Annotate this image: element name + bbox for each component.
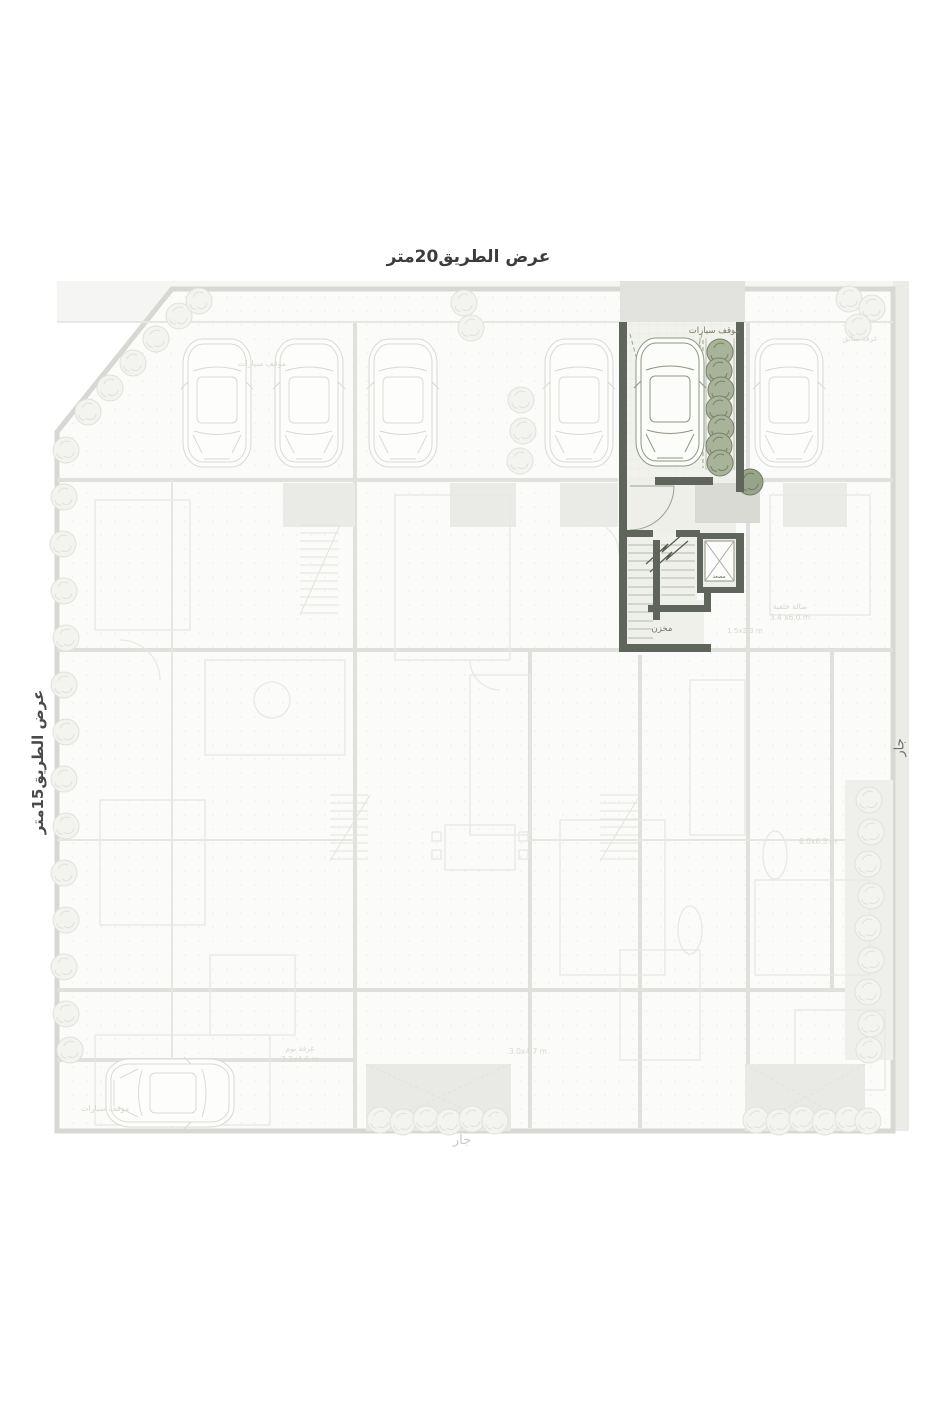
neighbor-bottom-label: جار [392,1133,532,1148]
elevator: مصعد [697,533,744,593]
elevator-label: مصعد [712,574,725,580]
road-width-top-label: عرض الطريق20متر [0,247,937,267]
road-width-left-label: عرض الطريق15متر [29,687,47,837]
faded-parking-label-2: موقف سيارات [81,1104,129,1113]
parked-car [634,338,706,466]
faded-floorplan: موقف سيارات غرفة سائق صالة خلفية 3.4 x6.… [50,281,909,1135]
parking-label: موقف سيارات [689,326,740,336]
faded-driver-room-label: غرفة سائق [843,334,878,343]
faded-back-hall-label: صالة خلفية [773,602,808,611]
faded-room-size-1: 3.0x4.7 m [509,1047,547,1056]
storage-label: مخزن [652,624,673,634]
site-plan-canvas: موقف سيارات غرفة سائق صالة خلفية 3.4 x6.… [0,0,937,1406]
unit-driveway-strip [620,281,745,322]
floorplan-drawing: موقف سيارات غرفة سائق صالة خلفية 3.4 x6.… [0,0,937,1406]
faded-storage-size: 1.5x2.3 m [727,627,763,635]
faded-back-hall-size: 3.4 x6.0 m [770,613,810,622]
faded-parking-label: موقف سيارات [238,359,286,368]
neighbor-right-label: جار [893,703,908,793]
faded-bedroom-label: غرفة نوم [286,1044,315,1053]
faded-room-size-2: 6.0x6.3 m [799,837,837,846]
faded-bedroom-size: 3.2x4.6 m [281,1055,319,1064]
